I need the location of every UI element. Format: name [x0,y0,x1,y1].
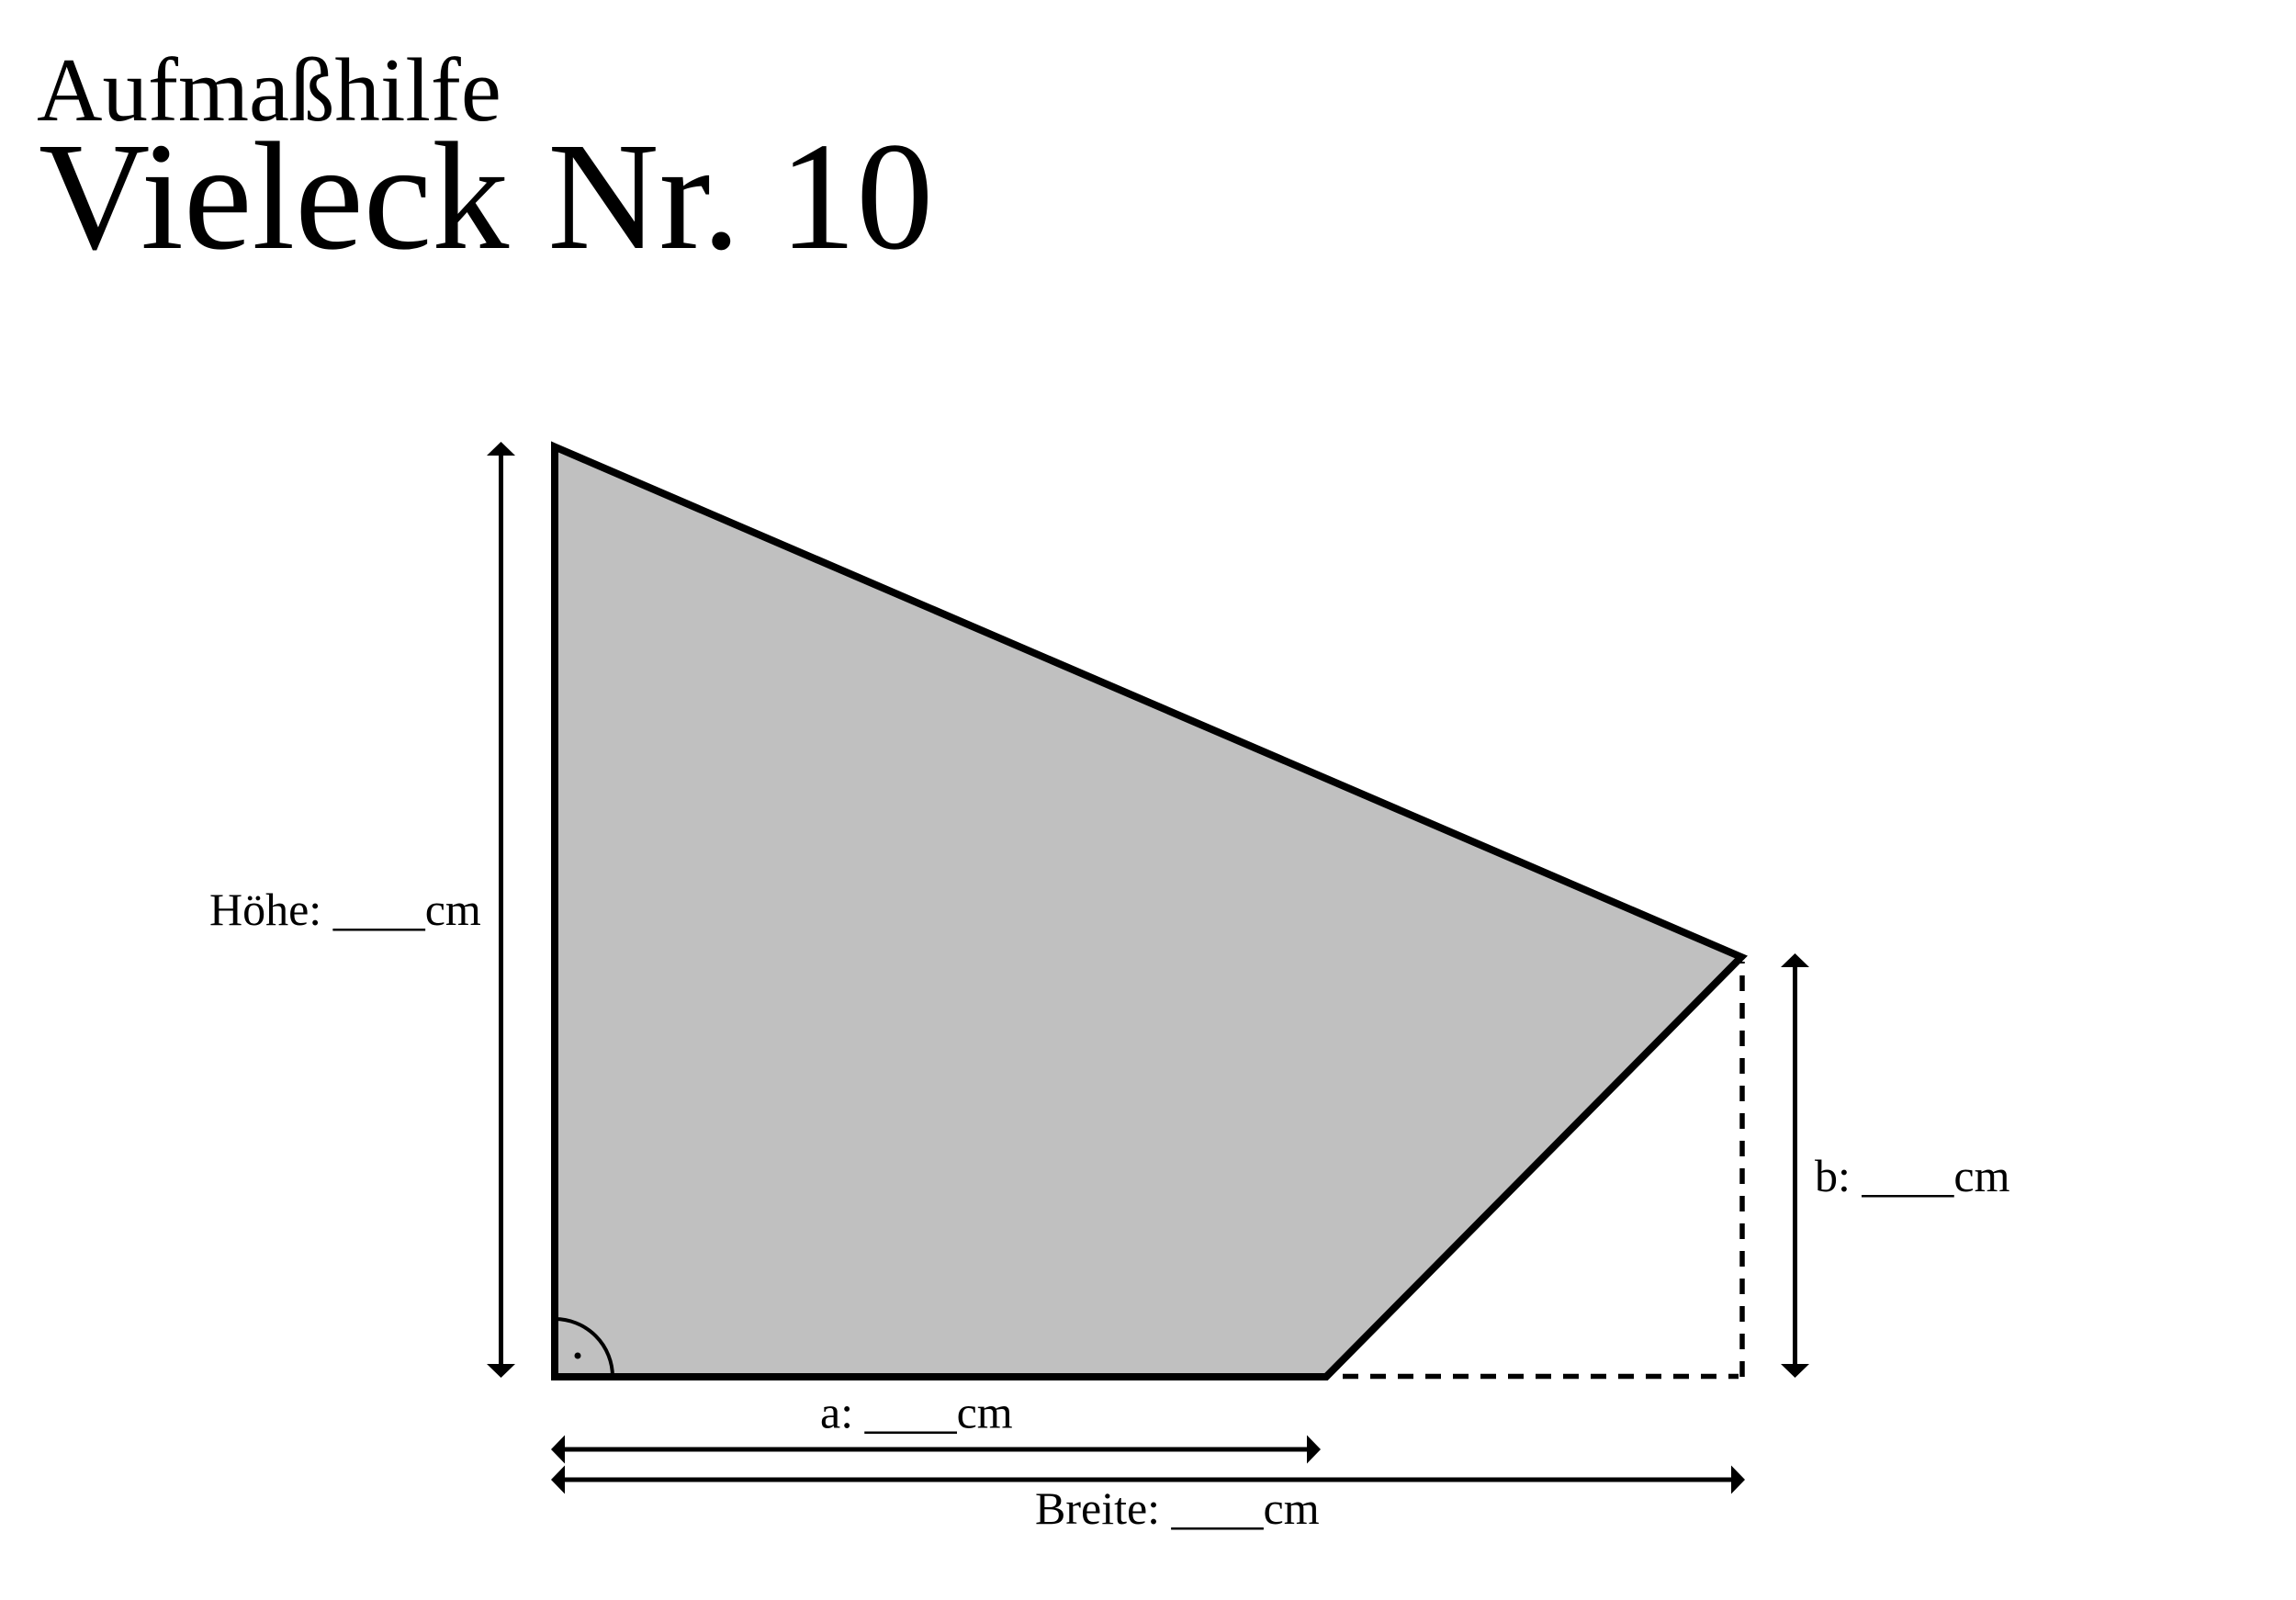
svg-text:Vieleck Nr. 10: Vieleck Nr. 10 [39,111,933,282]
svg-text:Breite: ____cm: Breite: ____cm [1035,1482,1320,1534]
svg-text:b: ____cm: b: ____cm [1815,1150,2010,1201]
svg-text:a: ____cm: a: ____cm [820,1387,1013,1438]
svg-text:Höhe: ____cm: Höhe: ____cm [209,884,481,935]
